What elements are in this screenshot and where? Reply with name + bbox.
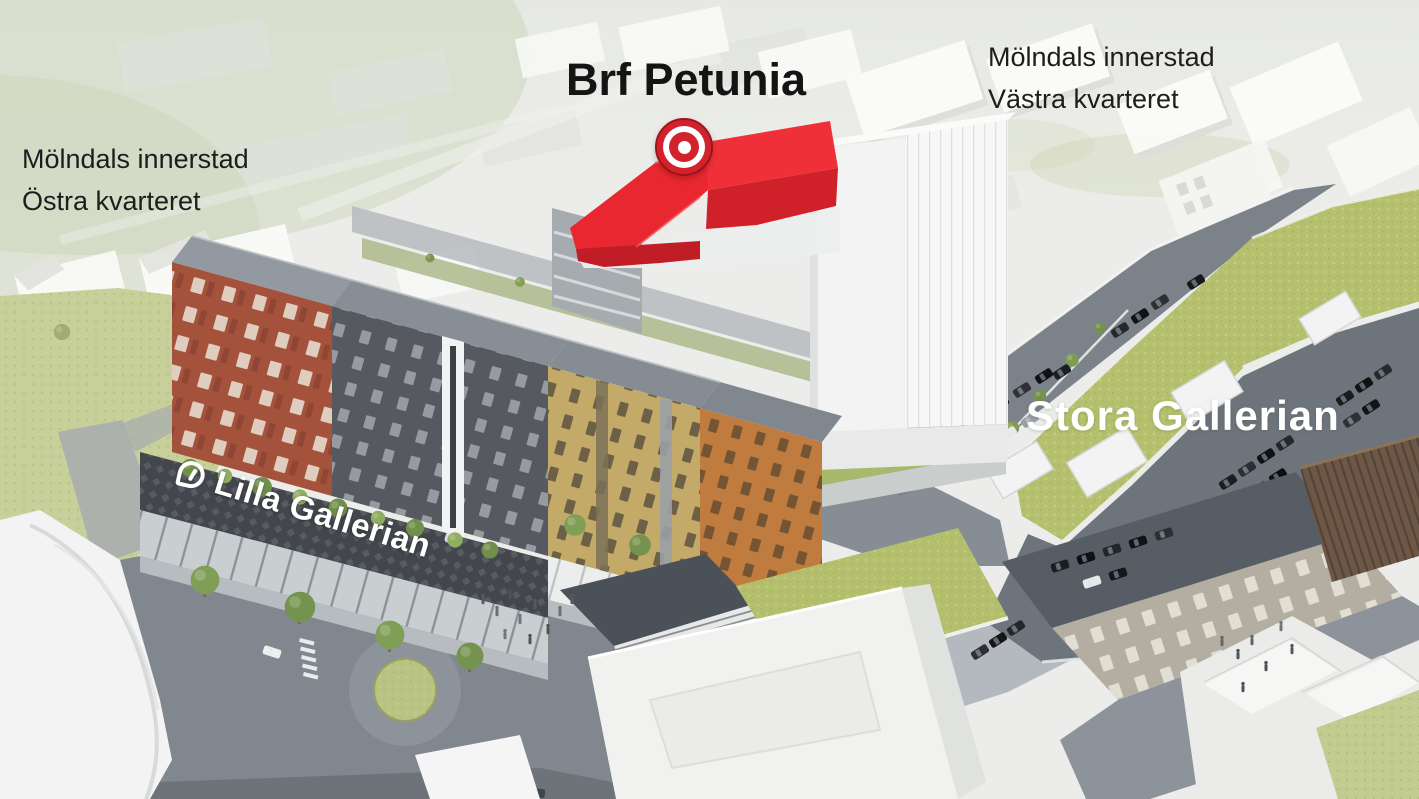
lilla-gallerian-logo-icon	[175, 458, 207, 490]
district-east-line2: Östra kvarteret	[22, 180, 249, 222]
location-marker-icon	[655, 118, 713, 176]
project-title-label: Brf Petunia	[566, 54, 806, 106]
district-west-line2: Västra kvarteret	[988, 78, 1215, 120]
district-label-east: Mölndals innerstad Östra kvarteret	[22, 138, 249, 222]
stora-gallerian-label: Stora Gallerian	[1026, 392, 1340, 440]
district-west-line1: Mölndals innerstad	[988, 36, 1215, 78]
rendering-canvas: Brf Petunia Mölndals innerstad Västra kv…	[0, 0, 1419, 799]
district-east-line1: Mölndals innerstad	[22, 138, 249, 180]
district-label-west: Mölndals innerstad Västra kvarteret	[988, 36, 1215, 120]
